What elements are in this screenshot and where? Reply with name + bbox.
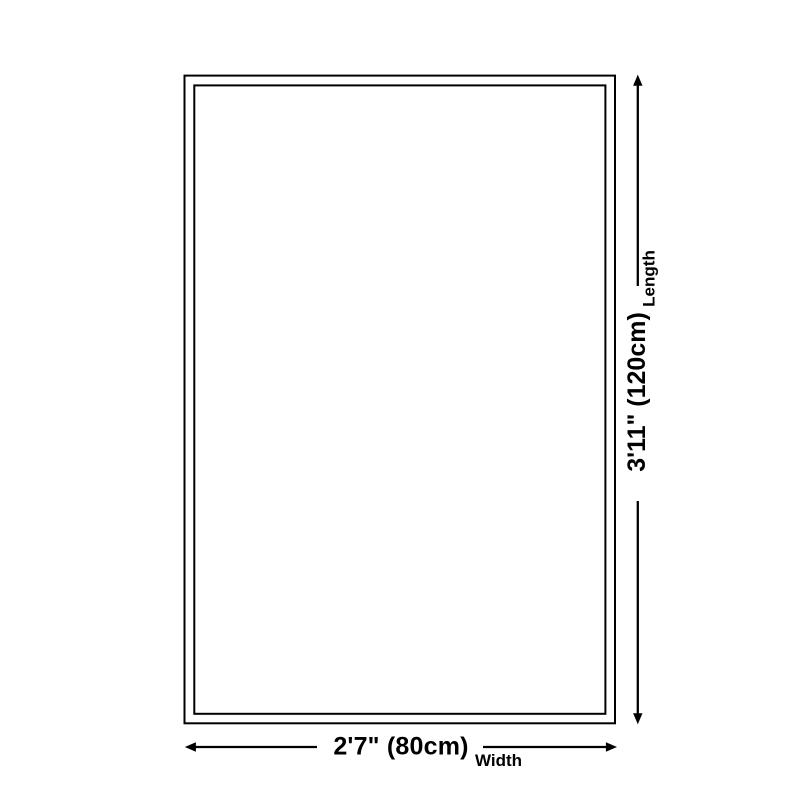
svg-text:Width: Width: [475, 751, 522, 770]
svg-text:Length: Length: [640, 250, 659, 307]
svg-text:2'7" (80cm): 2'7" (80cm): [333, 732, 468, 760]
svg-text:3'11" (120cm): 3'11" (120cm): [623, 312, 651, 472]
